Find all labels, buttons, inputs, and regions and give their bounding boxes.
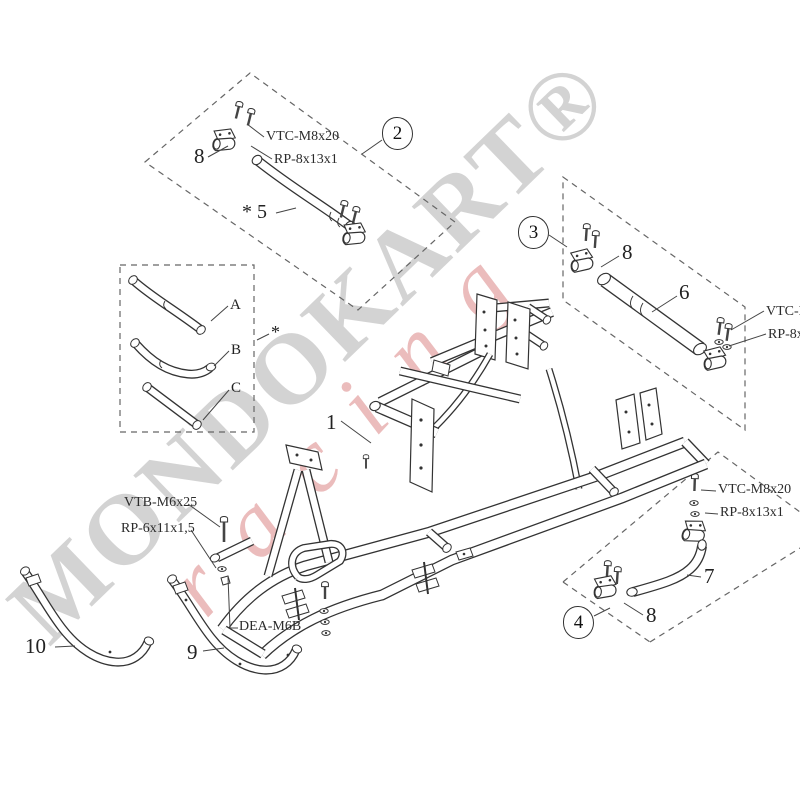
item-number-9: 9 <box>187 640 198 665</box>
callout-2-number: 2 <box>393 123 403 145</box>
callout-3-number: 3 <box>529 222 539 244</box>
clamp-8 <box>703 346 727 371</box>
part5-torsion-bar-group <box>211 101 367 248</box>
part-label-rp-s3: RP-8x13x1 <box>768 327 800 343</box>
steering-support-bracket <box>286 445 322 470</box>
washer-icon <box>690 501 698 506</box>
screw-icon <box>363 455 368 469</box>
seat-tower-plate <box>475 294 497 360</box>
part-label-vtc-s4: VTC-M8x20 <box>718 482 791 498</box>
asterisk-label: * <box>271 322 280 343</box>
clamp-8 <box>592 574 617 600</box>
variant-label-c: C <box>231 380 241 397</box>
screw-icon <box>691 473 698 491</box>
seat-tower-plate <box>506 302 530 369</box>
callout-4-number: 4 <box>574 612 584 634</box>
item-number-8-s2: 8 <box>194 144 205 169</box>
callout-3: 3 <box>518 216 549 249</box>
screw-icon <box>715 317 724 335</box>
clamp-8 <box>211 126 237 154</box>
item-number-7: 7 <box>704 564 715 589</box>
item-number-8-s3: 8 <box>622 240 633 265</box>
callout-4: 4 <box>563 606 594 639</box>
screw-icon <box>591 230 599 248</box>
washer-icon <box>320 609 328 614</box>
item-number-5: * 5 <box>242 201 267 224</box>
screw-icon <box>582 223 590 241</box>
item-number-1: 1 <box>326 410 337 435</box>
clamp-8 <box>570 248 594 273</box>
washer-icon <box>321 620 329 625</box>
part-label-dea: DEA-M6B <box>239 619 301 635</box>
item-number-8-s4: 8 <box>646 603 657 628</box>
washer-icon <box>715 340 723 345</box>
tube-a <box>134 281 200 329</box>
screw-icon <box>233 101 244 120</box>
part-label-rp6: RP-6x11x1,5 <box>121 521 195 537</box>
part-label-vtc-s2: VTC-M8x20 <box>266 129 339 145</box>
part6-silencer-support-group <box>570 223 733 371</box>
vtb-screw-icon <box>220 517 227 543</box>
screw-icon <box>322 582 329 599</box>
screw-icon <box>245 108 256 127</box>
callout-2: 2 <box>382 117 413 150</box>
item-number-10: 10 <box>25 634 46 659</box>
variant-tubes-group <box>127 274 217 431</box>
chassis-frame <box>209 294 706 655</box>
variant-label-a: A <box>230 297 241 314</box>
washer-icon <box>322 631 330 636</box>
spindle-yoke <box>282 590 305 604</box>
part-label-rp-s2: RP-8x13x1 <box>274 152 338 168</box>
part-label-vtc-s3: VTC-M8x20 <box>766 304 800 320</box>
part5-tube <box>258 161 351 227</box>
part-label-vtb: VTB-M6x25 <box>124 495 197 511</box>
variant-label-b: B <box>231 342 241 359</box>
item-number-6: 6 <box>679 280 690 305</box>
part-label-rp-s4: RP-8x13x1 <box>720 505 784 521</box>
washer-icon <box>691 512 699 517</box>
screw-icon <box>723 323 732 341</box>
tube-c <box>148 388 196 424</box>
diagram-canvas: MONDOKART® racing <box>0 0 800 800</box>
engine-mount-plate <box>616 394 640 449</box>
engine-mount-plate <box>640 388 662 440</box>
washer-icon <box>218 567 226 572</box>
